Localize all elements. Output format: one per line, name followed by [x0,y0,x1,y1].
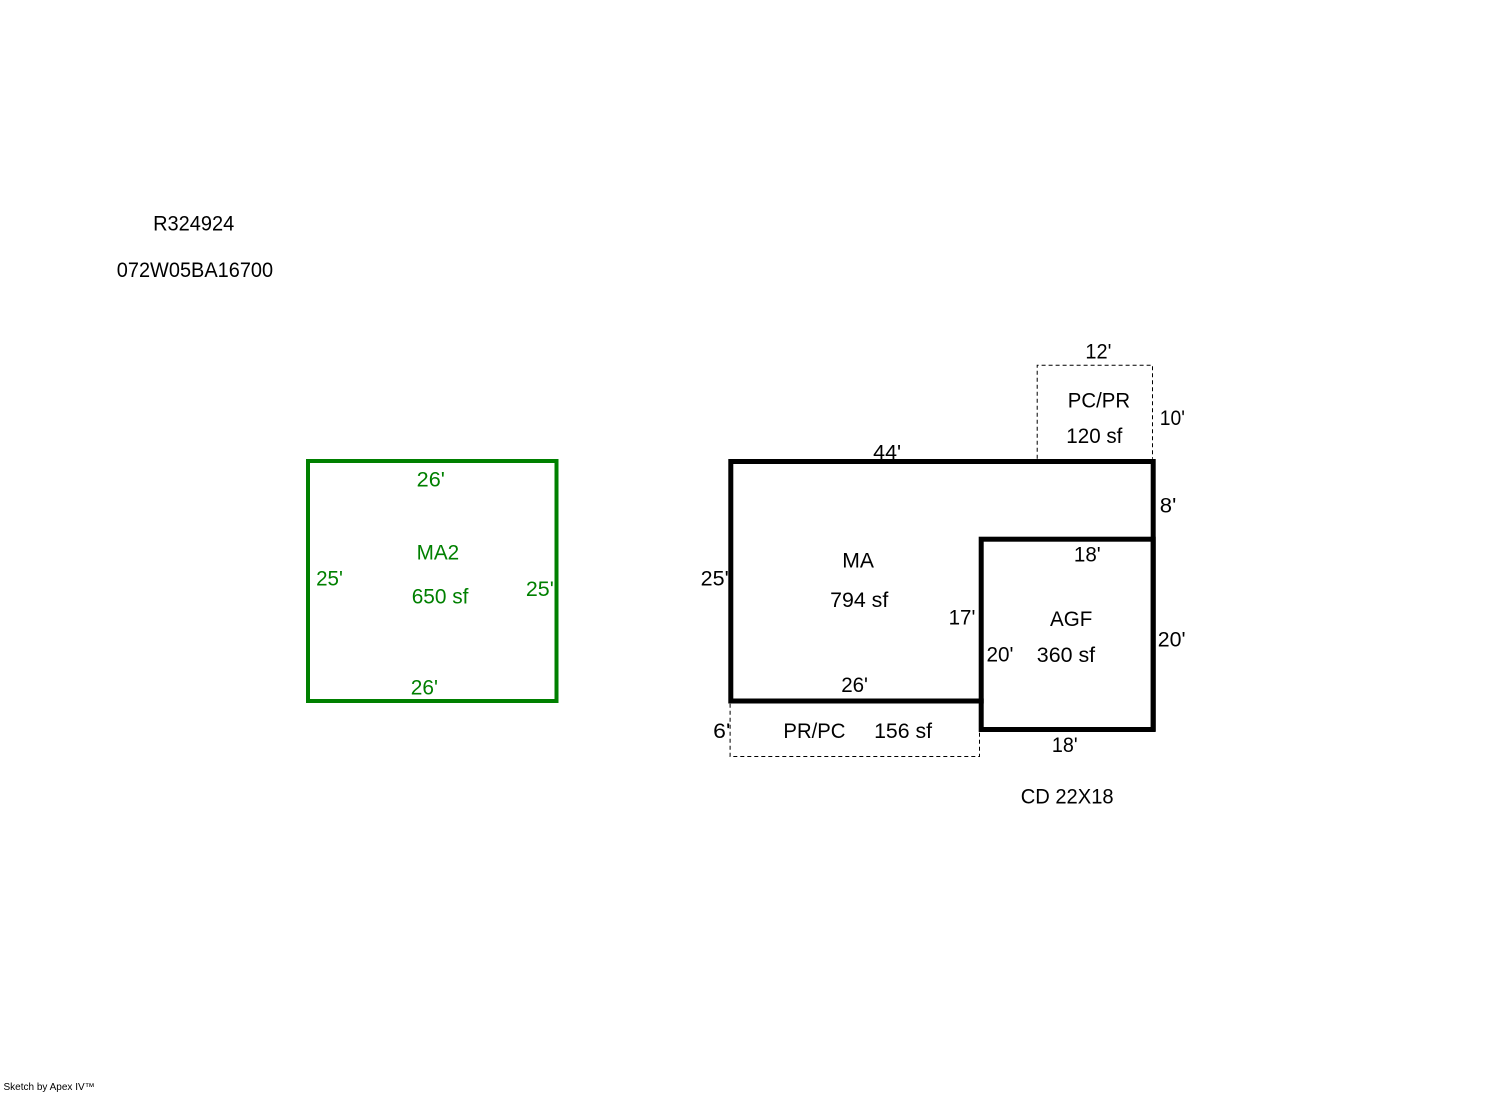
svg-text:25': 25' [701,568,729,591]
svg-text:Sketch by Apex IV™: Sketch by Apex IV™ [4,1082,95,1093]
svg-text:6': 6' [713,720,730,743]
svg-text:8': 8' [1160,495,1177,518]
svg-text:650 sf: 650 sf [412,586,469,609]
svg-text:794 sf: 794 sf [830,589,888,612]
svg-text:26': 26' [841,674,868,697]
svg-text:17': 17' [949,606,976,629]
svg-text:20': 20' [987,643,1014,666]
svg-text:10': 10' [1160,407,1185,430]
svg-text:MA2: MA2 [417,541,460,564]
svg-text:156 sf: 156 sf [874,720,932,743]
svg-text:MA: MA [842,549,874,572]
svg-text:R324924: R324924 [153,212,234,235]
svg-text:CD 22X18: CD 22X18 [1021,785,1114,808]
svg-text:072W05BA16700: 072W05BA16700 [117,259,273,282]
svg-text:20': 20' [1158,628,1186,651]
svg-text:26': 26' [411,676,438,699]
svg-text:120 sf: 120 sf [1066,425,1122,448]
svg-text:12': 12' [1085,341,1111,364]
svg-text:PC/PR: PC/PR [1068,390,1130,413]
svg-text:25': 25' [526,578,554,601]
svg-text:18': 18' [1052,734,1078,757]
svg-text:AGF: AGF [1050,608,1092,631]
svg-text:360 sf: 360 sf [1037,644,1095,667]
svg-text:26': 26' [417,469,445,492]
svg-text:25': 25' [316,568,343,591]
svg-text:18': 18' [1074,543,1101,566]
svg-text:PR/PC: PR/PC [783,720,845,743]
